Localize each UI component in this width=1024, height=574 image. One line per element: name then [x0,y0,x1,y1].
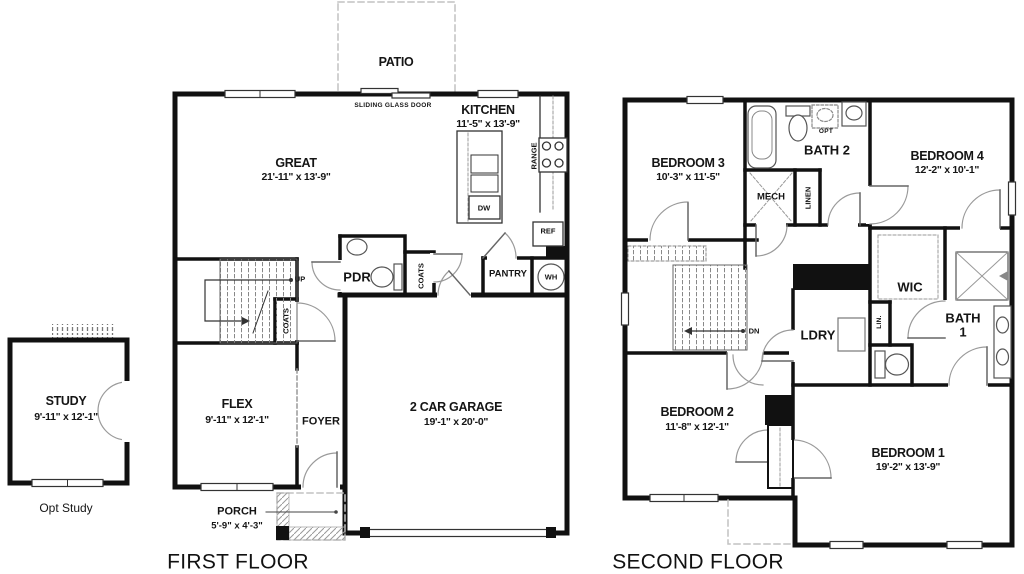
study-label: STUDY [46,395,87,408]
bedroom4-dims: 12'-2" x 10'-1" [915,165,979,176]
linen-label: LINEN [804,187,812,210]
second-floor-stairs [628,246,747,350]
second-floor-chase [793,264,870,290]
bath2-toilet-icon [789,115,807,141]
pdr-label: PDR [343,271,370,284]
pdr-toilet-tank [394,264,402,290]
bedroom3-dims: 10'-3" x 11'-5" [656,172,720,183]
pantry-label: PANTRY [489,269,527,279]
garage-label: 2 CAR GARAGE [410,401,502,414]
garage-door [367,530,549,537]
pdr-toilet-icon [371,267,393,287]
foyer-label: FOYER [302,417,340,428]
second-floor-title: SECOND FLOOR [612,552,784,573]
range-label: RANGE [530,142,538,169]
first-floor-plan [10,2,567,540]
study-dims: 9'-11" x 12'-1" [34,412,98,423]
laundry-appliance-icon [838,318,865,351]
flex-room-dims: 9'-11" x 12'-1" [205,415,269,426]
bedroom2-dims: 11'-8" x 12'-1" [665,422,729,433]
bath2-fixtures [748,102,866,168]
patio-outline [338,2,455,94]
bedroom3-label: BEDROOM 3 [651,157,724,170]
study-hatch [52,324,115,339]
refrigerator-label: REF [541,227,556,235]
porch-label: PORCH [217,507,257,518]
bath1-toilet-tank [875,351,885,378]
kitchen-chase [546,246,567,258]
porch-column [276,526,289,540]
opt-label: OPT [819,129,833,136]
great-room-label: GREAT [275,157,316,170]
sliding-glass-door-label: SLIDING GLASS DOOR [354,103,431,110]
bath1-toilet-icon [886,354,909,375]
bedroom4-label: BEDROOM 4 [910,150,983,163]
sliding-door-panel [392,93,430,98]
kitchen-label: KITCHEN [461,104,514,117]
bedroom1-label: BEDROOM 1 [871,447,944,460]
stairs-up-label: UP [295,275,305,283]
porch-dims: 5'-9" x 4'-3" [211,521,263,531]
bath1-label-line1: BATH [945,312,980,325]
water-heater-label: WH [545,273,558,281]
laundry-label: LDRY [801,329,836,342]
coats-stairs-label: COATS [282,308,290,334]
kitchen-dims: 11'-5" x 13'-9" [456,119,520,130]
wic-label: WIC [897,281,922,294]
floor-plan-page: PATIO SLIDING GLASS DOOR GREAT 21'-11" x… [0,0,1024,574]
bedroom1-dims: 19'-2" x 13'-9" [876,462,940,473]
dishwasher-label: DW [478,204,491,212]
patio-label: PATIO [379,56,414,69]
roof-outline-dashed [728,500,792,544]
bedroom2-closet-wall [765,395,793,425]
mech-label: MECH [757,192,785,202]
garage-dims: 19'-1" x 20'-0" [424,417,488,428]
stairs-dn-label: DN [749,327,760,335]
coats-hall-label: COATS [417,263,425,289]
pdr-sink-icon [347,239,367,255]
great-room-dims: 21'-11" x 13'-9" [261,172,330,183]
lin-label: LIN. [877,315,884,328]
bath1-label-line2: 1 [959,326,966,339]
bath2-label: BATH 2 [804,144,850,157]
flex-room-label: FLEX [222,398,253,411]
opt-study-label: Opt Study [39,502,92,514]
porch-structure [266,493,345,540]
floor-plan-linework [0,0,1024,574]
bedroom2-label: BEDROOM 2 [660,406,733,419]
first-floor-title: FIRST FLOOR [167,552,309,573]
first-floor-door-arcs [98,233,516,487]
